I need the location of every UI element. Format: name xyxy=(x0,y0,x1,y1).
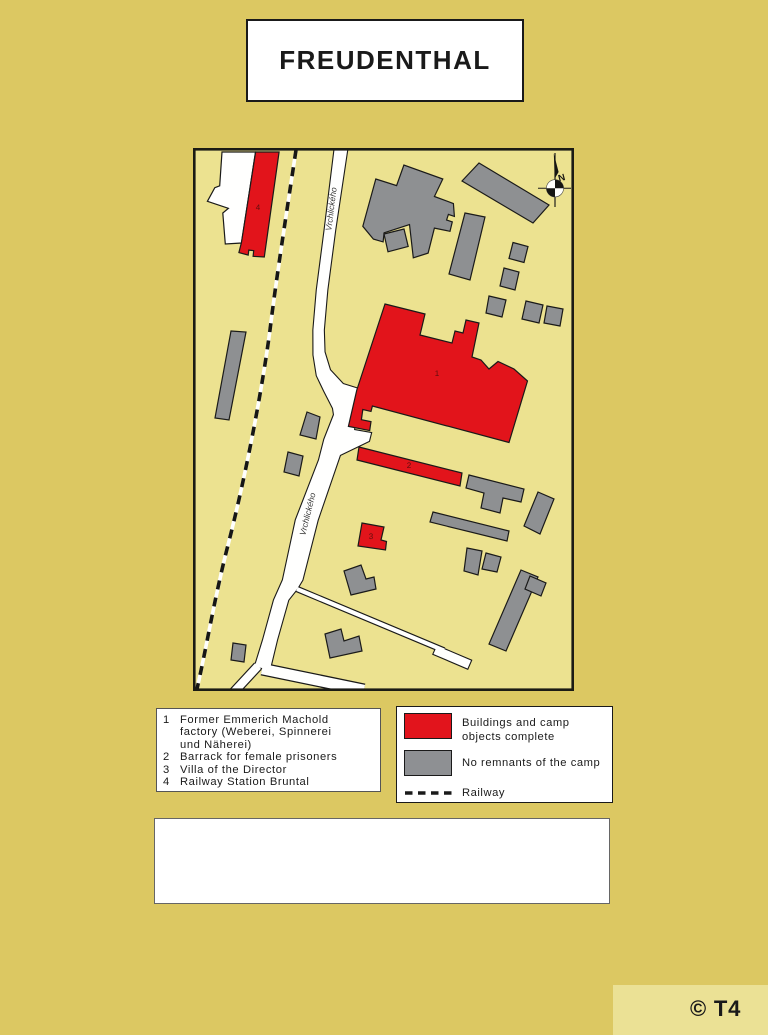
svg-text:2: 2 xyxy=(407,461,412,470)
svg-text:3: 3 xyxy=(369,532,374,541)
svg-text:1: 1 xyxy=(435,369,440,378)
svg-text:4: 4 xyxy=(256,203,261,212)
